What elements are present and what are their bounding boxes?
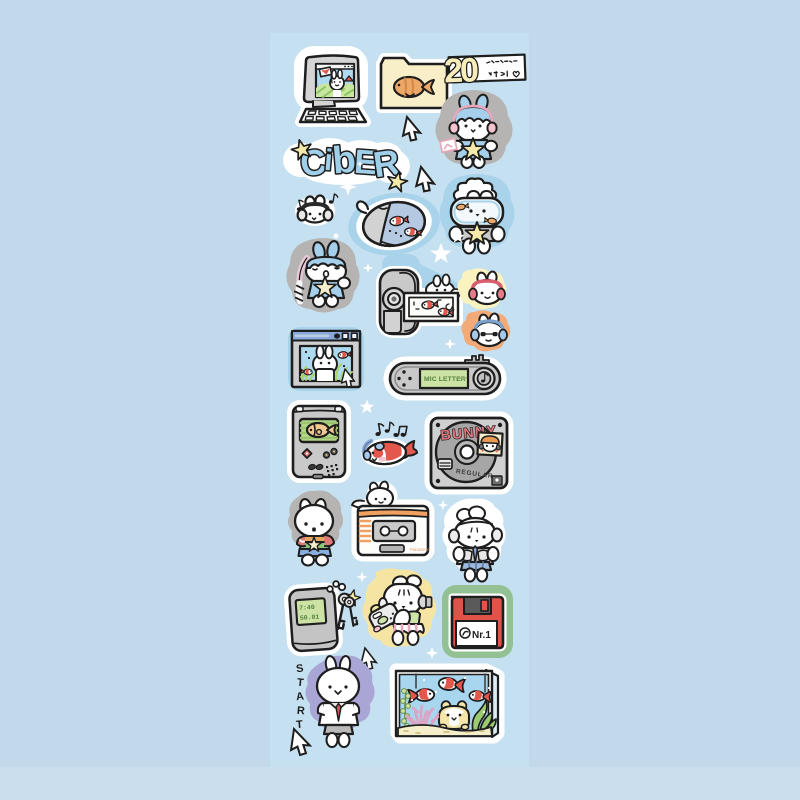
svg-text:T: T <box>296 719 304 732</box>
svg-text:Nr.1: Nr.1 <box>472 630 491 641</box>
svg-text:A: A <box>295 691 304 704</box>
svg-text:7:40: 7:40 <box>299 604 315 612</box>
svg-text:Panasonic: Panasonic <box>410 547 430 552</box>
svg-text:R: R <box>296 705 305 718</box>
svg-text:MIC LETTER: MIC LETTER <box>424 376 466 383</box>
svg-text:20: 20 <box>443 51 478 90</box>
svg-text:50.01: 50.01 <box>300 614 320 622</box>
